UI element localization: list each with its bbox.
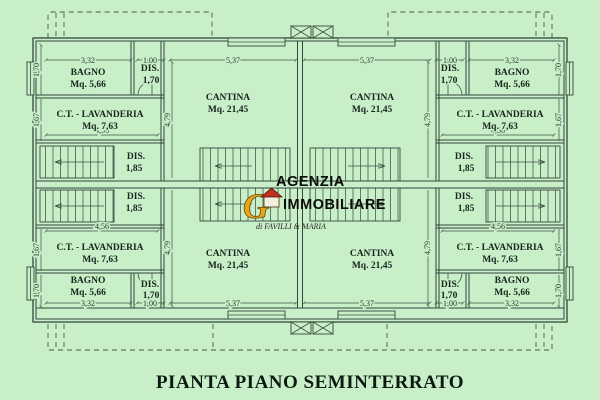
room-area-dis: 1,70 [441, 76, 458, 86]
room-label-cantina: CANTINA [350, 93, 394, 103]
room-label-bagno: BAGNO [71, 276, 106, 286]
room-label-dis-mid: DIS. [455, 192, 473, 202]
room-label-bagno: BAGNO [495, 276, 530, 286]
dim-label: 1,67 [554, 113, 563, 127]
room-area-lavanderia: Mq. 7,63 [482, 255, 518, 265]
room-area-bagno: Mq. 5,66 [70, 288, 106, 298]
room-label-bagno: BAGNO [495, 68, 530, 78]
room-label-dis: DIS. [141, 64, 159, 74]
dim-label: 4,79 [423, 113, 432, 127]
room-area-dis-mid: 1,85 [458, 164, 475, 174]
dim-label: 1,67 [32, 243, 41, 257]
room-label-cantina: CANTINA [206, 93, 250, 103]
room-area-lavanderia: Mq. 7,63 [82, 122, 118, 132]
dim-label: 3,32 [505, 299, 519, 308]
room-area-dis: 1,70 [143, 76, 160, 86]
room-area-dis: 1,70 [441, 291, 458, 301]
window [338, 38, 395, 46]
dim-label: 1,70 [554, 63, 563, 77]
room-label-cantina: CANTINA [206, 249, 250, 259]
room-area-cantina: Mq. 21,45 [352, 261, 393, 271]
watermark-tagline: di FAVILLI & MARIA [256, 222, 326, 231]
vent-box [313, 322, 333, 334]
room-area-bagno: Mq. 5,66 [494, 288, 530, 298]
window [338, 311, 395, 319]
room-area-lavanderia: Mq. 7,63 [482, 122, 518, 132]
watermark-line2: IMMOBILIARE [283, 197, 386, 213]
room-label-dis: DIS. [141, 280, 159, 290]
dim-label: 3,32 [81, 56, 95, 65]
room-label-dis-mid: DIS. [127, 152, 145, 162]
dim-label: 5,37 [360, 299, 374, 308]
room-area-dis-mid: 1,85 [458, 204, 475, 214]
dim-label: 5,37 [226, 56, 240, 65]
window [566, 62, 573, 95]
room-label-dis: DIS. [441, 64, 459, 74]
dim-label: 1,70 [32, 284, 41, 298]
vent-box [313, 26, 333, 38]
plan-title: PIANTA PIANO SEMINTERRATO [156, 372, 464, 393]
dim-label: 3,32 [505, 56, 519, 65]
room-label-lavanderia: C.T. - LAVANDERIA [56, 243, 143, 253]
room-area-dis-mid: 1,85 [126, 204, 143, 214]
room-area-cantina: Mq. 21,45 [208, 261, 249, 271]
vent-box [291, 26, 311, 38]
room-label-cantina: CANTINA [350, 249, 394, 259]
window [228, 38, 285, 46]
floor-plan-page: 3,32 1,00 5,37 5,37 1,00 3,32 3,32 1,00 … [0, 0, 600, 400]
vent-box [291, 322, 311, 334]
dim-label: 5,37 [360, 56, 374, 65]
room-label-bagno: BAGNO [71, 68, 106, 78]
room-area-cantina: Mq. 21,45 [208, 105, 249, 115]
watermark-line1: AGENZIA [276, 174, 345, 190]
room-label-lavanderia: C.T. - LAVANDERIA [56, 110, 143, 120]
dim-label: 1,67 [554, 243, 563, 257]
room-area-lavanderia: Mq. 7,63 [82, 255, 118, 265]
dim-label: 4,56 [491, 222, 505, 231]
room-area-bagno: Mq. 5,66 [70, 80, 106, 90]
room-label-dis-mid: DIS. [127, 192, 145, 202]
room-label-dis: DIS. [441, 280, 459, 290]
dim-label: 4,79 [423, 241, 432, 255]
room-area-bagno: Mq. 5,66 [494, 80, 530, 90]
room-area-dis-mid: 1,85 [126, 164, 143, 174]
dim-label: 4,79 [163, 241, 172, 255]
dim-label: 1,70 [32, 63, 41, 77]
room-label-dis-mid: DIS. [455, 152, 473, 162]
room-area-cantina: Mq. 21,45 [352, 105, 393, 115]
dim-label: 1,70 [554, 284, 563, 298]
dim-label: 4,56 [95, 222, 109, 231]
dim-label: 3,32 [81, 299, 95, 308]
window [228, 311, 285, 319]
floor-plan-drawing: 3,32 1,00 5,37 5,37 1,00 3,32 3,32 1,00 … [0, 0, 600, 400]
dim-label: 1,67 [32, 113, 41, 127]
dim-label: 5,37 [226, 299, 240, 308]
watermark: G AGENZIA IMMOBILIARE di FAVILLI & MARIA [243, 174, 386, 231]
room-area-dis: 1,70 [143, 291, 160, 301]
room-label-lavanderia: C.T. - LAVANDERIA [456, 110, 543, 120]
room-label-lavanderia: C.T. - LAVANDERIA [456, 243, 543, 253]
window [566, 267, 573, 300]
dim-label: 4,79 [163, 113, 172, 127]
